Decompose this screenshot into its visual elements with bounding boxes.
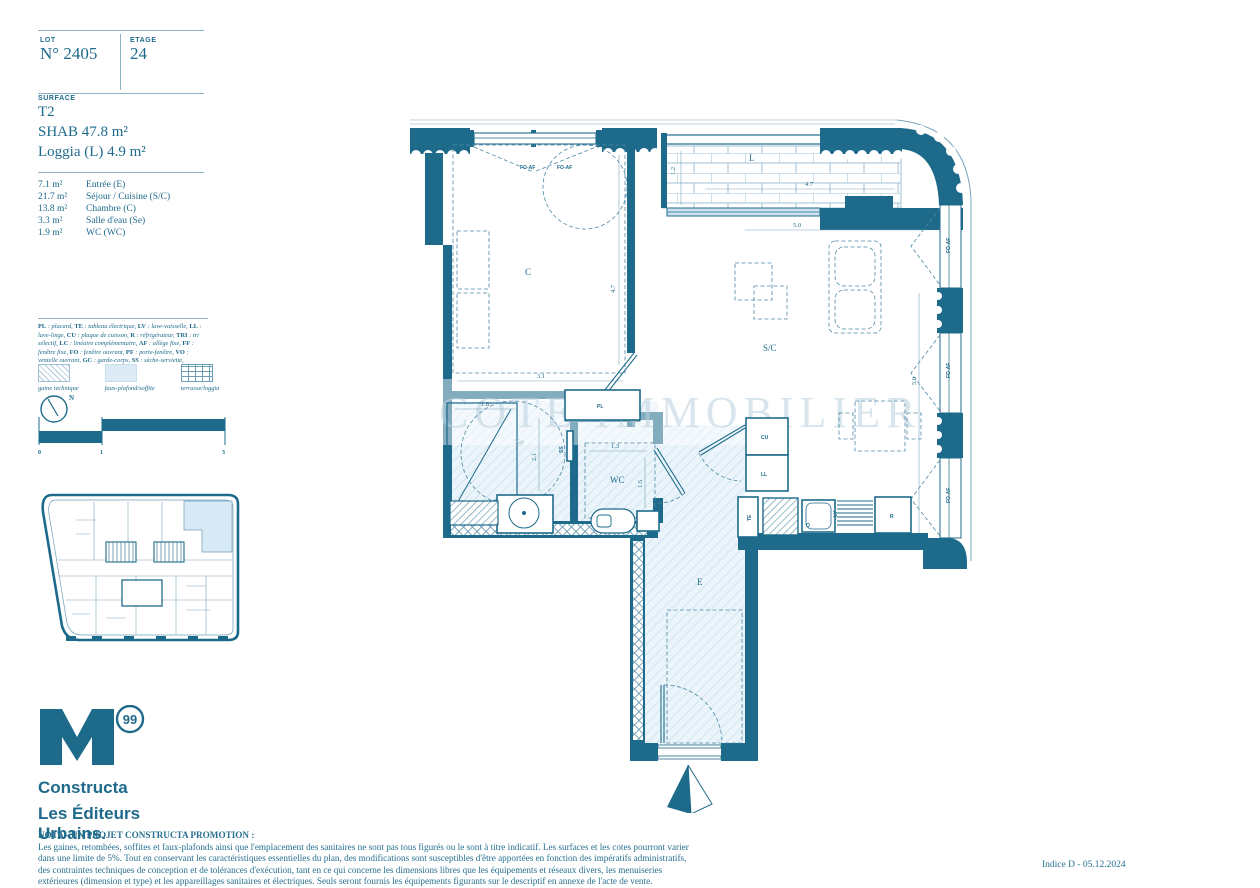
room-name: Séjour / Cuisine (S/C) — [86, 191, 170, 203]
towel-rail-label-ss: SS — [559, 446, 565, 453]
revision-index: Indice D - 05.12.2024 — [1042, 860, 1126, 870]
dim-bedroom-width: 3.1 — [537, 373, 545, 380]
window-label-foaf: FO-AF — [946, 363, 952, 378]
gaine-technique-hatch — [450, 501, 498, 525]
watermark: COTE IMMOBILIER — [433, 379, 921, 445]
window-label-foaf: FO-AF — [946, 238, 952, 253]
gaine-swatch-icon — [38, 364, 70, 382]
lot-header: LOT N° 2405 ETAGE 24 — [38, 30, 204, 94]
swatch-faux-plafond: faux-plafond/soffite — [105, 364, 155, 392]
bedroom-window: FO-AF FO-AF — [474, 133, 596, 171]
sink-label: O — [806, 523, 810, 529]
surface-label: SURFACE — [38, 95, 204, 102]
room-row: 13.8 m²Chambre (C) — [38, 203, 204, 215]
room-area: 3.3 m² — [38, 215, 86, 227]
dim-living-height: 5.0 — [911, 377, 918, 385]
etage-label: ETAGE — [130, 37, 157, 44]
surface-shab: SHAB 47.8 m² — [38, 122, 204, 142]
loggia-label: L — [749, 153, 755, 163]
dim-living-width: 5.0 — [793, 222, 801, 229]
room-name: WC (WC) — [86, 227, 125, 239]
dim-bath-height: 2.1 — [531, 453, 538, 461]
dim-loggia-height: 1.2 — [670, 167, 677, 175]
swatch-label: faux-plafond/soffite — [105, 385, 155, 392]
floor-plan: L 4.7 1.2 — [405, 113, 985, 813]
room-area: 1.9 m² — [38, 227, 86, 239]
dim-wc-width: 1.3 — [611, 443, 619, 450]
room-row: 21.7 m²Séjour / Cuisine (S/C) — [38, 191, 204, 203]
nota-disclaimer: NOTA - UN PROJET CONSTRUCTA PROMOTION : … — [38, 830, 690, 888]
developer-logo: 99 Constructa Les Éditeurs Urbains. — [38, 705, 168, 844]
dishwasher-label-lv: LV — [833, 510, 839, 517]
wc-label: WC — [610, 475, 625, 485]
scale-bar: 0 1 3 — [38, 416, 238, 456]
bathroom-label: Se — [515, 437, 524, 447]
room-list: 7.1 m²Entrée (E) 21.7 m²Séjour / Cuisine… — [38, 172, 204, 239]
header-divider — [120, 34, 121, 90]
room-name: Entrée (E) — [86, 179, 125, 191]
terrasse-swatch-icon — [181, 364, 213, 382]
placard: PL — [565, 390, 640, 420]
dim-loggia-width: 4.7 — [805, 181, 814, 188]
dim-shower: 1.8 — [481, 401, 489, 408]
north-label: N — [69, 394, 74, 402]
living-label: S/C — [763, 343, 777, 353]
swatch-terrasse: terrasse/loggia — [181, 364, 220, 392]
room-area: 7.1 m² — [38, 179, 86, 191]
abbreviation-legend: PL : placard, TE : tableau électrique, L… — [38, 318, 208, 366]
surface-block: SURFACE T2 SHAB 47.8 m² Loggia (L) 4.9 m… — [38, 95, 204, 162]
dim-bedroom-height: 4.7 — [610, 284, 617, 293]
room-row: 7.1 m²Entrée (E) — [38, 179, 204, 191]
pattern-legend: gaine technique faux-plafond/soffite ter… — [38, 364, 219, 392]
bedroom: C 4.7 3.1 — [453, 145, 637, 405]
washer-label-ll: LL — [761, 472, 767, 478]
nota-body: Les gaines, retombées, soffites et faux-… — [38, 842, 690, 888]
scale-3: 3 — [222, 450, 225, 456]
faux-plafond-swatch-icon — [105, 364, 137, 382]
logo-editeurs: Les Éditeurs — [38, 804, 168, 824]
swatch-label: gaine technique — [38, 385, 79, 392]
lot-value: N° 2405 — [40, 44, 97, 64]
entry-label: E — [697, 577, 703, 587]
window-label-foaf: FO-AF — [557, 165, 572, 171]
floorplan-sheet: LOT N° 2405 ETAGE 24 SURFACE T2 SHAB 47.… — [0, 0, 1260, 888]
entrance-marker-icon — [667, 765, 691, 813]
scale-0: 0 — [38, 450, 41, 456]
nota-title: NOTA - UN PROJET CONSTRUCTA PROMOTION : — [38, 830, 690, 842]
swatch-gaine: gaine technique — [38, 364, 79, 392]
swatch-label: terrasse/loggia — [181, 385, 220, 392]
window-label-foaf: FO-AF — [520, 165, 535, 171]
room-area: 13.8 m² — [38, 203, 86, 215]
watermark-text: COTE IMMOBILIER — [439, 388, 921, 437]
electrical-panel-label-te: TE — [747, 514, 753, 521]
room-fills — [445, 401, 745, 745]
dim-wc-height: 1.5 — [637, 480, 644, 488]
bedroom-label: C — [525, 267, 531, 277]
dishwasher-lv: LV — [833, 501, 873, 525]
surface-loggia: Loggia (L) 4.9 m² — [38, 142, 204, 162]
key-plan — [36, 490, 244, 654]
room-name: Chambre (C) — [86, 203, 136, 215]
right-windows: FO-AF FO-AF FO-AF — [911, 205, 961, 538]
placard-label-pl: PL — [597, 404, 603, 410]
logo-badge-99: 99 — [123, 712, 137, 727]
etage-value: 24 — [130, 44, 157, 64]
room-name: Salle d'eau (Se) — [86, 215, 145, 227]
room-area: 21.7 m² — [38, 191, 86, 203]
scale-1: 1 — [100, 450, 103, 456]
room-row: 1.9 m²WC (WC) — [38, 227, 204, 239]
m99-logo-icon: 99 — [38, 705, 168, 767]
window-label-foaf: FO-AF — [946, 488, 952, 503]
lot-label: LOT — [40, 37, 97, 44]
logo-constructa: Constructa — [38, 778, 168, 798]
fridge-label-r: R — [890, 514, 894, 520]
gaine-technique-hatch — [763, 498, 798, 535]
room-row: 3.3 m²Salle d'eau (Se) — [38, 215, 204, 227]
hob-label-cu: CU — [761, 435, 769, 441]
surface-type: T2 — [38, 102, 204, 122]
